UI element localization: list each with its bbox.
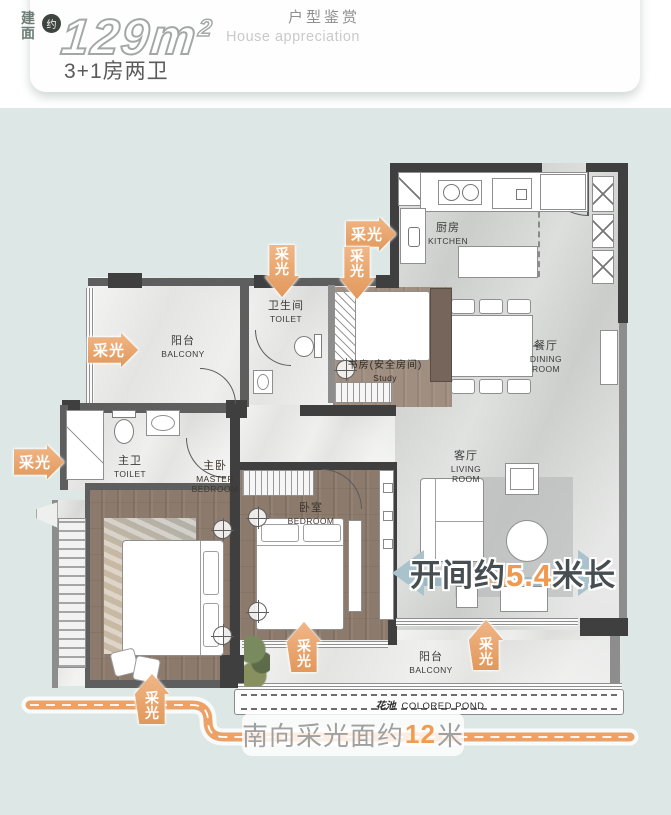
- balcony-ac-pad: [36, 502, 58, 528]
- bedroom-downlight-2: [248, 602, 267, 621]
- study-closet: [334, 382, 392, 403]
- master-downlight-1: [213, 520, 232, 539]
- header-title-cn: 户型鉴赏: [205, 6, 360, 27]
- width-prefix: 开间约: [410, 558, 506, 593]
- room-label-kitchen: 厨房 KITCHEN: [420, 222, 476, 246]
- dining-chair: [479, 299, 503, 314]
- dining-chair: [451, 379, 475, 394]
- dining-chair: [507, 379, 531, 394]
- light-badge-balcony-west: 采光: [88, 333, 138, 367]
- wall-right-lower: [619, 323, 627, 621]
- light-badge-master-south: 采 光: [135, 674, 169, 724]
- floorplan-poster: 建 面 约 129m2 3+1房两卫 户型鉴赏 House appreciati…: [0, 0, 671, 815]
- light-badge-label: 采光: [19, 452, 51, 473]
- room-label-master-bath: 主卫 TOILET: [100, 455, 160, 479]
- pillar-n2: [376, 275, 396, 288]
- room-label-bedroom: 卧室 BEDROOM: [280, 502, 342, 526]
- room-label-toilet-shared: 卫生间 TOILET: [244, 300, 328, 324]
- light-badge-living-south: 采 光: [469, 620, 503, 670]
- header-title: 户型鉴赏 House appreciation: [205, 6, 360, 45]
- mbath-toilet-tank: [112, 410, 136, 418]
- shaft-x2: [592, 214, 614, 248]
- master-bed: [122, 540, 224, 656]
- dining-chair: [507, 299, 531, 314]
- shaft-x3: [592, 250, 614, 284]
- header-title-en: House appreciation: [205, 29, 360, 45]
- dining-chair: [451, 299, 475, 314]
- side-table: [505, 463, 539, 495]
- light-badge-kitchen-west: 采光: [346, 217, 396, 251]
- toilet-tank: [314, 334, 322, 358]
- toilet-bowl: [294, 336, 314, 357]
- burner-2: [462, 184, 479, 201]
- kitchen-appliance: [492, 178, 532, 209]
- light-badge-toilet-north: 采 光: [265, 245, 299, 297]
- bedroom-bed: [256, 518, 344, 630]
- dining-chair: [479, 379, 503, 394]
- toilet-sink: [253, 370, 273, 394]
- wall-corner-br: [580, 618, 628, 636]
- wall-top-left-of-entry: [390, 163, 542, 172]
- room-label-living: 客厅 LIVING ROOM: [436, 450, 496, 485]
- south-prefix: 南向采光面约: [242, 716, 404, 753]
- shaft-x1: [592, 176, 614, 212]
- wall-right-upper: [618, 163, 628, 323]
- south-light-banner: 南向采光面约12米: [242, 712, 464, 756]
- burner-1: [443, 184, 460, 201]
- width-dimension-text: 开间约5.4米长: [410, 550, 616, 595]
- light-badge-bedroom-south: 采 光: [287, 622, 321, 672]
- entry-cabinet: [600, 330, 618, 385]
- south-value: 12: [405, 719, 436, 750]
- shower: [66, 410, 104, 480]
- room-label-master-bedroom: 主卧 MASTER BEDROOM: [183, 460, 247, 495]
- bedroom-desk: [348, 520, 362, 612]
- width-suffix: 米长: [552, 558, 616, 593]
- mbath-sink: [146, 410, 180, 436]
- bedroom-downlight-1: [248, 508, 267, 527]
- room-label-study: 书房(安全房间) Study: [330, 360, 440, 383]
- light-badge-study-north: 采 光: [340, 247, 374, 299]
- wall-study-south: [300, 405, 396, 416]
- kitchen-island: [458, 246, 538, 278]
- study-bed: [334, 291, 430, 361]
- wall-bedroom-north: [237, 462, 389, 470]
- area-prefix-char1: 建: [21, 11, 36, 26]
- kitchen-tall-cabinet: [398, 172, 422, 206]
- south-suffix: 米: [437, 716, 464, 753]
- width-value: 5.4: [506, 558, 552, 593]
- fridge: [540, 174, 586, 210]
- layout-text: 3+1房两卫: [64, 55, 169, 85]
- approx-badge: 约: [42, 14, 61, 33]
- light-badge-label: 采光: [93, 340, 125, 361]
- light-badge-label: 采光: [351, 224, 383, 245]
- pillar-nw: [108, 273, 142, 288]
- area-prefix: 建 面: [21, 11, 36, 41]
- tv-wall-cabinet: [379, 470, 394, 620]
- mbath-toilet-bowl: [114, 419, 134, 444]
- sun-road: [0, 640, 671, 780]
- room-label-balcony-top: 阳台 BALCONY: [153, 335, 213, 359]
- light-badge-bath-west: 采光: [14, 445, 64, 479]
- bedroom-wardrobe: [242, 470, 314, 496]
- area-prefix-char2: 面: [21, 26, 36, 41]
- room-label-dining: 餐厅 DINING ROOM: [518, 340, 574, 375]
